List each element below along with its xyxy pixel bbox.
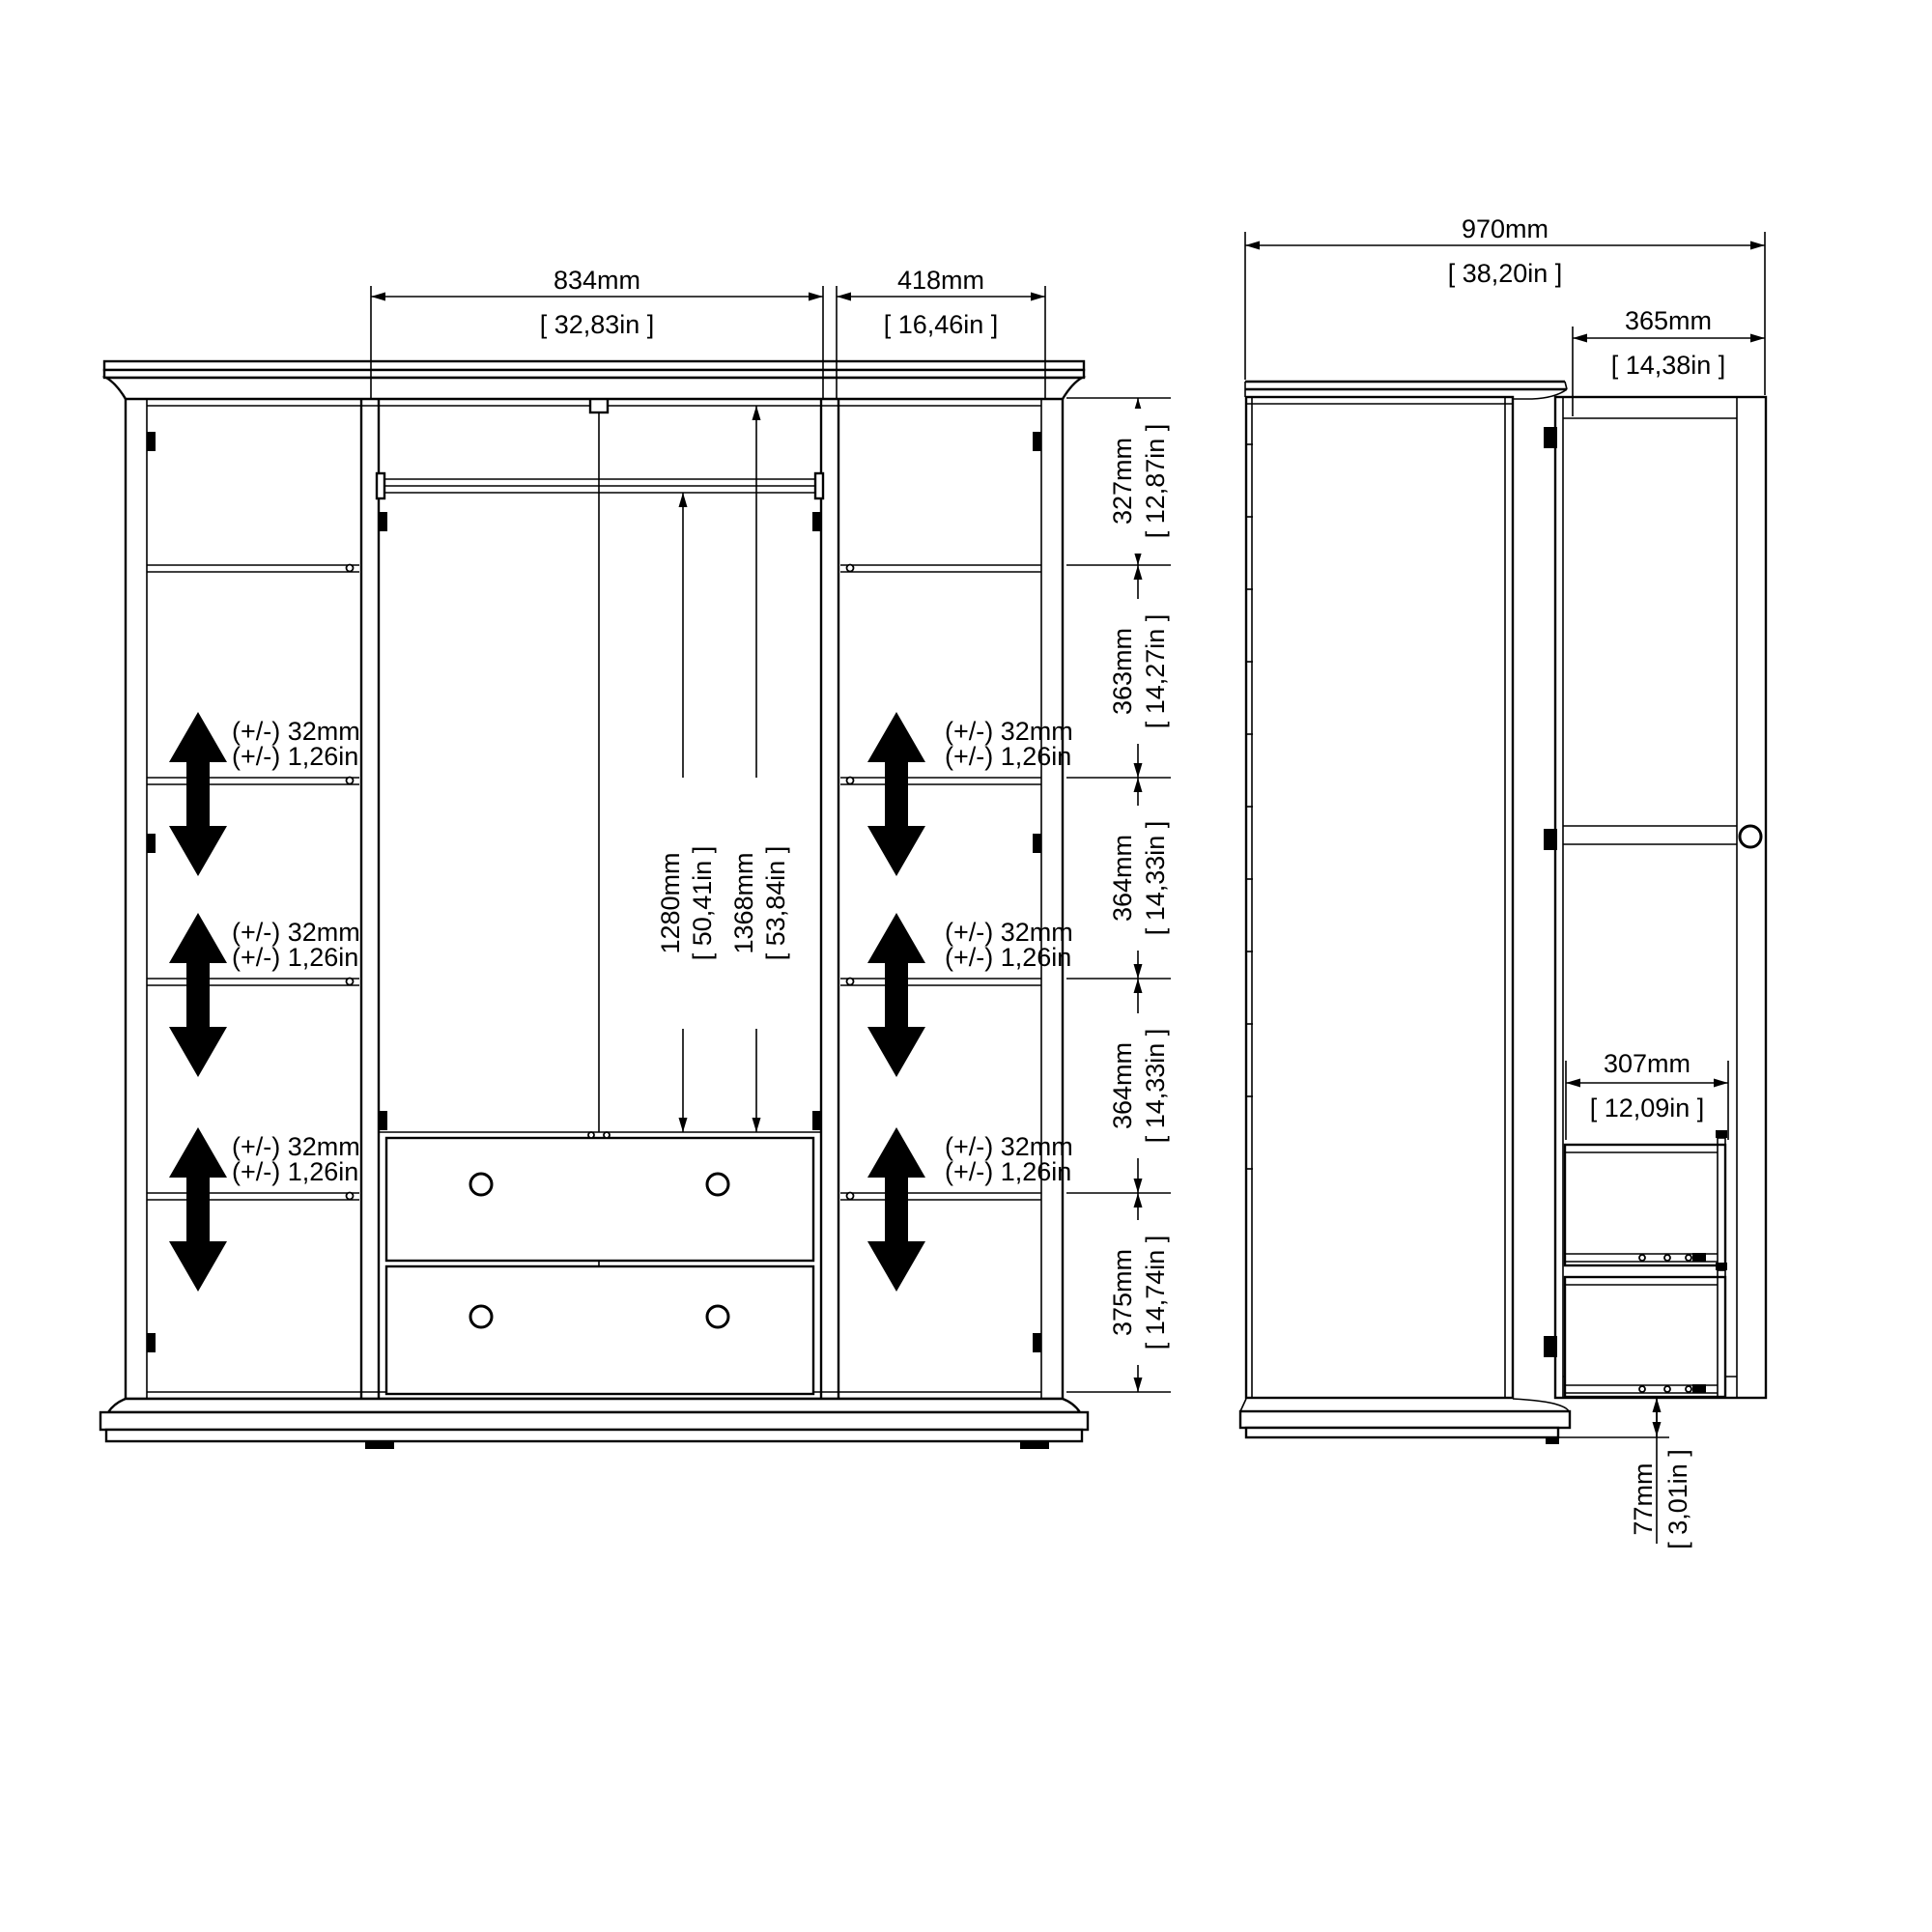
- shelf-pin: [347, 1193, 354, 1200]
- drawer-box-upper: [1565, 1145, 1725, 1265]
- drawer-fitting: [1716, 1130, 1727, 1138]
- top-center-fitting: [590, 398, 608, 412]
- dim-rail-height-in: [ 50,41in ]: [688, 846, 717, 961]
- dim-right-width-in: [ 16,46in ]: [884, 310, 999, 339]
- dim-plinth-height-in: [ 3,01in ]: [1663, 1449, 1692, 1549]
- dim-interior-height-mm: 1368mm: [729, 852, 758, 953]
- hinge: [1544, 427, 1557, 448]
- dim-middle-width-mm: 834mm: [554, 266, 640, 295]
- drawer-knob: [470, 1306, 492, 1327]
- tolerance-label-in: (+/-) 1,26in: [945, 943, 1071, 972]
- hinge: [147, 1333, 156, 1352]
- dim-section3-in: [ 14,33in ]: [1141, 821, 1170, 936]
- slide-stop: [1692, 1384, 1706, 1393]
- shelf-pin: [847, 979, 854, 985]
- rail-bracket: [377, 473, 384, 498]
- shelf-pin: [847, 778, 854, 784]
- dim-section3-mm: 364mm: [1108, 835, 1137, 922]
- dim-rail-height-mm: 1280mm: [656, 852, 685, 953]
- foot: [1020, 1441, 1049, 1449]
- slide-roller: [1639, 1386, 1645, 1392]
- dim-right-width-mm: 418mm: [897, 266, 984, 295]
- dim-section2-in: [ 14,27in ]: [1141, 614, 1170, 729]
- drawer-fitting: [1716, 1263, 1727, 1270]
- shelf-pin: [347, 565, 354, 572]
- hinge: [1033, 432, 1041, 451]
- slide-roller: [1686, 1255, 1691, 1261]
- slide-roller: [1664, 1386, 1670, 1392]
- side-view: 970mm [ 38,20in ] 365mm [ 14,38in ] 307m…: [1240, 214, 1766, 1549]
- slide-stop: [1692, 1253, 1706, 1262]
- hinge: [1033, 834, 1041, 853]
- dim-section2-mm: 363mm: [1108, 628, 1137, 715]
- hinge: [379, 1111, 387, 1130]
- drawer-knob: [470, 1174, 492, 1195]
- rail-bracket: [815, 473, 823, 498]
- hinge: [1544, 1336, 1557, 1357]
- slide-roller: [1639, 1255, 1645, 1261]
- dim-door-width-mm: 365mm: [1625, 306, 1712, 335]
- drawer-knob: [707, 1174, 728, 1195]
- hinge: [147, 432, 156, 451]
- front-cornice: [104, 361, 1084, 399]
- drawer-front-lower: [386, 1266, 813, 1394]
- slide-roller: [1664, 1255, 1670, 1261]
- drawer-front-upper: [386, 1138, 813, 1261]
- dim-section4-mm: 364mm: [1108, 1042, 1137, 1129]
- dim-total-depth-in: [ 38,20in ]: [1448, 259, 1563, 288]
- drawer-fitting: [588, 1132, 594, 1138]
- hinge: [1544, 829, 1557, 850]
- dim-door-width-in: [ 14,38in ]: [1611, 351, 1726, 380]
- drawer-fitting: [604, 1132, 610, 1138]
- dim-section1-mm: 327mm: [1108, 438, 1137, 525]
- hinge: [147, 834, 156, 853]
- foot: [1546, 1437, 1559, 1444]
- dim-plinth-height-mm: 77mm: [1629, 1463, 1658, 1535]
- wardrobe-assembly-drawing: 834mm [ 32,83in ] 418mm [ 16,46in ] 327m…: [0, 0, 1932, 1932]
- front-view: 834mm [ 32,83in ] 418mm [ 16,46in ] 327m…: [100, 266, 1171, 1449]
- door-knob: [1740, 826, 1761, 847]
- foot: [365, 1441, 394, 1449]
- slide-roller: [1686, 1386, 1691, 1392]
- shelf-pin: [847, 1193, 854, 1200]
- hinge: [812, 512, 821, 531]
- dim-total-depth-mm: 970mm: [1462, 214, 1548, 243]
- tolerance-label-in: (+/-) 1,26in: [232, 742, 358, 771]
- tolerance-label-in: (+/-) 1,26in: [945, 1157, 1071, 1186]
- tolerance-label-in: (+/-) 1,26in: [232, 1157, 358, 1186]
- dim-section1-in: [ 12,87in ]: [1141, 424, 1170, 539]
- dim-middle-width-in: [ 32,83in ]: [540, 310, 655, 339]
- shelf-pin: [347, 979, 354, 985]
- drawer-box-lower: [1565, 1277, 1725, 1397]
- dim-section5-in: [ 14,74in ]: [1141, 1236, 1170, 1350]
- hinge: [379, 512, 387, 531]
- front-plinth: [100, 1399, 1088, 1449]
- tolerance-label-in: (+/-) 1,26in: [945, 742, 1071, 771]
- side-plinth: [1240, 1399, 1669, 1444]
- dim-interior-height-in: [ 53,84in ]: [761, 846, 790, 961]
- drawer-knob: [707, 1306, 728, 1327]
- dim-section4-in: [ 14,33in ]: [1141, 1029, 1170, 1144]
- hinge: [1033, 1333, 1041, 1352]
- shelf-pin: [347, 778, 354, 784]
- dim-section5-mm: 375mm: [1108, 1249, 1137, 1336]
- hinge: [812, 1111, 821, 1130]
- tolerance-label-in: (+/-) 1,26in: [232, 943, 358, 972]
- shelf-pin: [847, 565, 854, 572]
- dim-drawer-extension-mm: 307mm: [1604, 1049, 1690, 1078]
- dim-drawer-extension-in: [ 12,09in ]: [1590, 1094, 1705, 1122]
- front-height-dimensions: 327mm [ 12,87in ] 363mm [ 14,27in ] 364m…: [1066, 398, 1171, 1392]
- side-drawers: [1565, 1130, 1727, 1397]
- technical-drawing-canvas: 834mm [ 32,83in ] 418mm [ 16,46in ] 327m…: [0, 0, 1932, 1932]
- side-body-outline: [1246, 397, 1513, 1398]
